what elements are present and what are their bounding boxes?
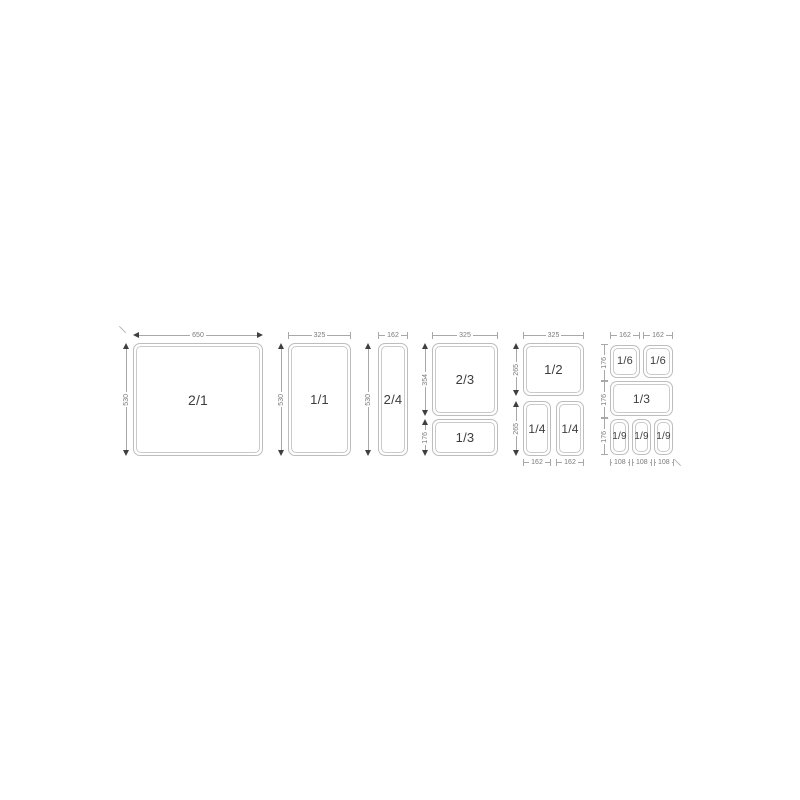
dim-side-1-2: 265 <box>511 343 521 396</box>
dim-label: 325 <box>312 332 328 339</box>
pan-1-3: 1/3 <box>432 419 498 456</box>
pan-1-6-left: 1/6 <box>610 345 640 378</box>
pan-1-4-right: 1/4 <box>556 401 584 456</box>
pan-2-3: 2/3 <box>432 343 498 416</box>
dim-label: 176 <box>601 355 608 371</box>
dim-bottom-1-4-right: 162 <box>556 457 584 467</box>
dim-side-1-9: 176 <box>599 418 609 455</box>
pan-label: 1/4 <box>561 423 578 435</box>
pan-label: 1/3 <box>633 393 650 405</box>
dim-label: 650 <box>190 332 206 339</box>
dim-label: 162 <box>385 332 401 339</box>
dim-label: 530 <box>123 392 130 408</box>
dim-top-1-2: 325 <box>523 330 584 340</box>
corner-tick-top-left <box>119 326 126 333</box>
dim-label: 162 <box>617 332 633 339</box>
pan-1-3-wide: 1/3 <box>610 381 673 416</box>
pan-label: 1/1 <box>310 393 329 406</box>
pan-label: 1/2 <box>544 363 563 376</box>
dim-label: 354 <box>422 372 429 388</box>
dim-label: 108 <box>634 459 650 466</box>
pan-1-2: 1/2 <box>523 343 584 396</box>
dim-bottom-1-9-a: 108 <box>610 457 629 467</box>
dim-bottom-1-4-left: 162 <box>523 457 551 467</box>
pan-1-6-right: 1/6 <box>643 345 673 378</box>
gastronorm-size-diagram: 2/1 650 530 1/1 325 530 2/4 162 530 2/3 … <box>0 0 800 800</box>
dim-label: 176 <box>422 430 429 446</box>
pan-label: 1/6 <box>617 356 633 367</box>
dim-label: 162 <box>529 459 545 466</box>
pan-label: 1/6 <box>650 356 666 367</box>
dim-side-1-6: 176 <box>599 344 609 381</box>
corner-tick-bottom-right <box>674 459 681 466</box>
dim-label: 530 <box>278 392 285 408</box>
dim-bottom-1-9-c: 108 <box>654 457 673 467</box>
dim-side-1-3-wide: 176 <box>599 381 609 418</box>
pan-label: 1/3 <box>456 431 475 444</box>
dim-side-2-3: 354 <box>420 343 430 416</box>
pan-label: 1/4 <box>528 423 545 435</box>
pan-label: 2/3 <box>456 373 475 386</box>
dim-side-1-1: 530 <box>276 343 286 456</box>
pan-label: 2/4 <box>384 393 403 406</box>
pan-1-4-left: 1/4 <box>523 401 551 456</box>
pan-label: 1/9 <box>612 432 627 442</box>
pan-2-4: 2/4 <box>378 343 408 456</box>
dim-label: 265 <box>513 421 520 437</box>
dim-top-1-6-right: 162 <box>643 330 673 340</box>
dim-label: 162 <box>650 332 666 339</box>
dim-top-1-6-left: 162 <box>610 330 640 340</box>
pan-1-9-c: 1/9 <box>654 419 673 455</box>
pan-label: 2/1 <box>188 393 208 407</box>
dim-label: 325 <box>457 332 473 339</box>
dim-bottom-1-9-b: 108 <box>632 457 651 467</box>
dim-top-1-1: 325 <box>288 330 351 340</box>
pan-label: 1/9 <box>634 432 649 442</box>
dim-top-2-4: 162 <box>378 330 408 340</box>
dim-label: 108 <box>656 459 672 466</box>
pan-1-1: 1/1 <box>288 343 351 456</box>
pan-label: 1/9 <box>656 432 671 442</box>
dim-side-2-1: 530 <box>121 343 131 456</box>
dim-side-1-4: 265 <box>511 401 521 456</box>
dim-side-2-4: 530 <box>363 343 373 456</box>
dim-side-1-3: 176 <box>420 419 430 456</box>
dim-label: 530 <box>365 392 372 408</box>
dim-label: 176 <box>601 429 608 445</box>
dim-top-2-3: 325 <box>432 330 498 340</box>
dim-top-2-1: 650 <box>133 330 263 340</box>
pan-2-1: 2/1 <box>133 343 263 456</box>
pan-1-9-a: 1/9 <box>610 419 629 455</box>
pan-1-9-b: 1/9 <box>632 419 651 455</box>
dim-label: 108 <box>612 459 628 466</box>
dim-label: 162 <box>562 459 578 466</box>
dim-label: 325 <box>546 332 562 339</box>
dim-label: 176 <box>601 392 608 408</box>
dim-label: 265 <box>513 362 520 378</box>
